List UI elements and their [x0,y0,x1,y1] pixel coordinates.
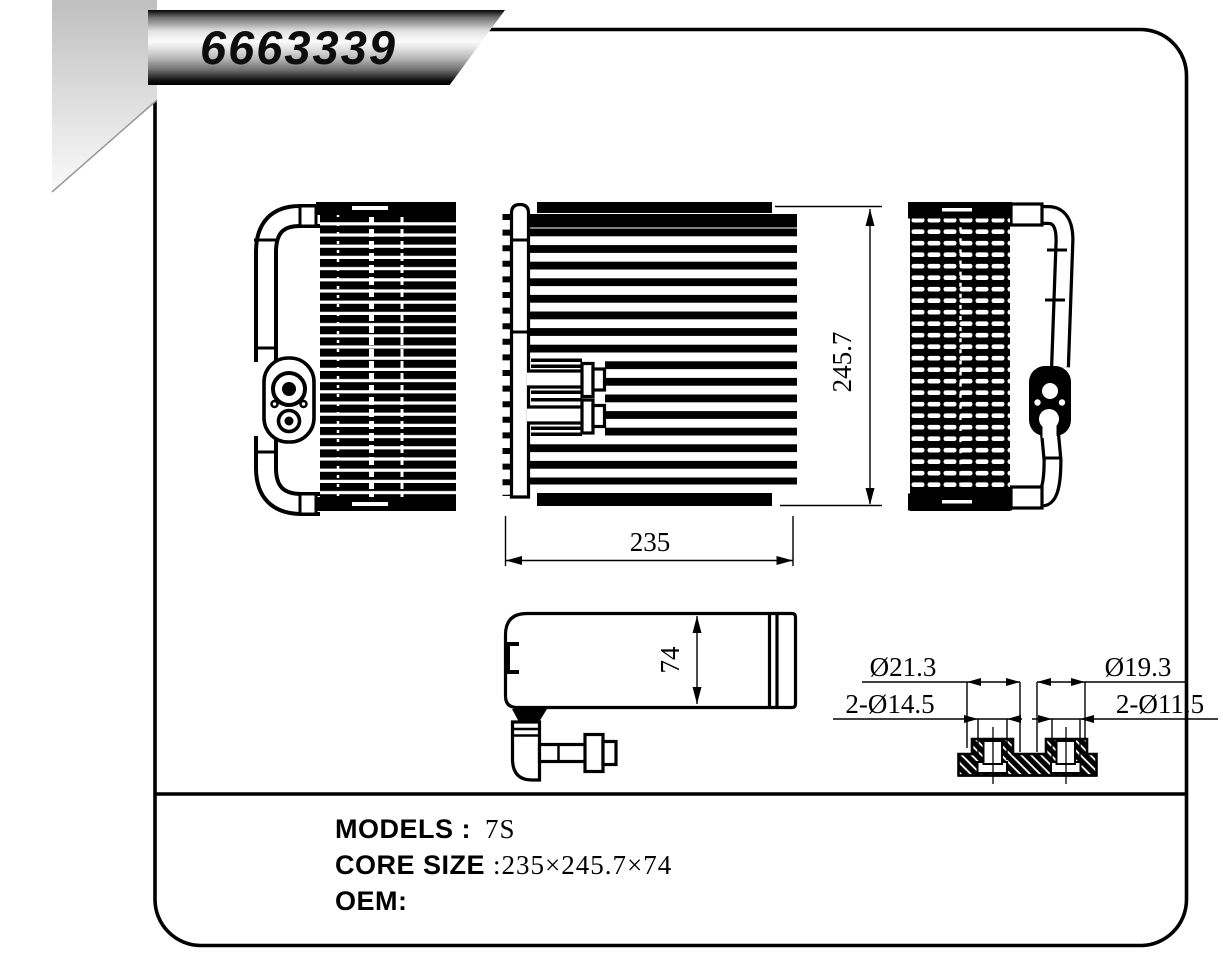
port-outer-left-label: Ø21.3 [870,652,937,682]
oem-label: OEM: [335,886,408,916]
front-view-header-bar [530,214,797,228]
right-view-inlet-port [1042,383,1058,399]
dim-depth-label: 74 [655,646,685,674]
spec-row-models: MODELS :7S [335,814,516,845]
part-number-banner: 6663339 [148,10,505,85]
dim-height-label: 245.7 [827,332,857,393]
front-view [507,202,798,506]
bottom-view-body [506,614,796,708]
spec-row-oem: OEM: [335,886,408,917]
core-size-label: CORE SIZE [335,850,485,880]
dim-width-label: 235 [630,527,671,557]
bottom-view-bolt-shaft [540,745,587,762]
models-value: 7S [485,814,516,844]
front-view-lower-fitting-pipe [527,407,584,423]
port-outer-right-label: Ø19.3 [1105,652,1172,682]
dimension-width: 235 [506,516,794,566]
front-view-upper-fitting-pipe [527,371,584,387]
right-side-view [908,202,1071,511]
port-holes-left-label: 2-Ø14.5 [845,689,934,719]
core-size-value: :235×245.7×74 [493,850,672,880]
port-holes-right-label: 2-Ø11.5 [1116,689,1204,719]
drawing-canvas: 245.7 235 [0,0,1223,968]
right-view-fin-core [910,203,1010,511]
spec-row-core-size: CORE SIZE:235×245.7×74 [335,850,672,881]
port-section-detail: Ø21.3 Ø19.3 2-Ø14.5 2-Ø11.5 [833,652,1218,784]
corner-shade [52,0,157,192]
technical-drawing-page: 245.7 235 [0,0,1223,968]
left-side-view [254,202,456,514]
bottom-view-elbow-pipe [513,722,540,780]
models-label: MODELS : [335,814,471,844]
bottom-view: 74 [504,614,796,781]
left-view-fin-core [320,203,456,511]
part-number: 6663339 [200,20,397,75]
front-view-side-pipe [512,205,529,498]
